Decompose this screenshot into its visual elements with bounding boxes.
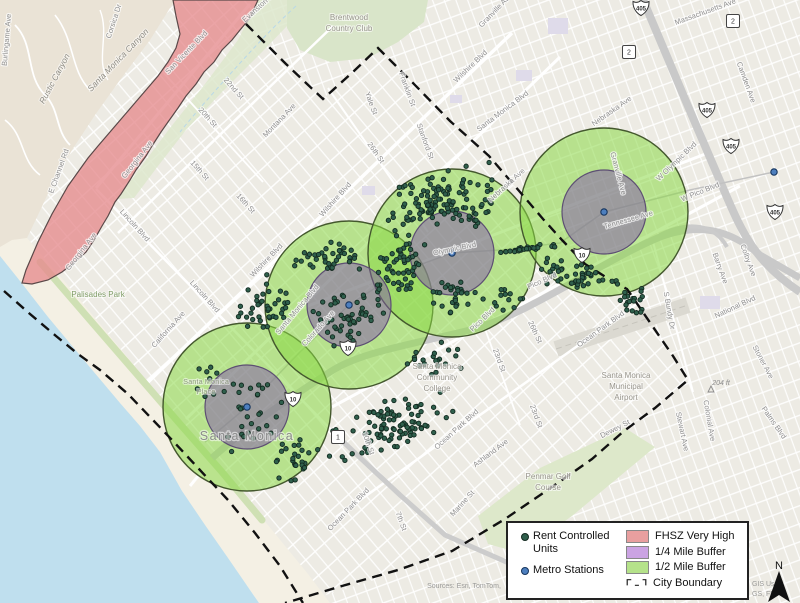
rent-controlled-unit-dot <box>454 211 458 215</box>
rent-controlled-unit-dot <box>414 350 418 354</box>
rent-controlled-unit-dot <box>476 183 480 187</box>
rent-controlled-unit-dot <box>589 265 593 269</box>
map-label: Penmar Golf <box>526 472 572 481</box>
rent-controlled-unit-dot <box>334 258 338 262</box>
legend-label: Metro Stations <box>533 564 604 577</box>
rent-controlled-unit-dot <box>369 318 373 322</box>
svg-text:1: 1 <box>336 435 340 442</box>
rent-controlled-unit-dot <box>487 160 491 164</box>
rent-controlled-unit-dot <box>454 354 458 358</box>
rent-controlled-unit-dot <box>331 251 335 255</box>
rent-controlled-unit-dot <box>579 263 583 267</box>
rent-controlled-unit-dot <box>416 413 420 417</box>
rent-controlled-unit-dot <box>215 371 219 375</box>
rent-controlled-unit-dot <box>410 185 414 189</box>
svg-text:10: 10 <box>345 346 352 352</box>
rent-controlled-unit-dot <box>327 454 331 458</box>
rent-controlled-unit-dot <box>387 418 391 422</box>
rent-controlled-unit-dot <box>347 260 351 264</box>
map-label: Sources: Esri, TomTom, <box>427 583 501 590</box>
rent-controlled-unit-dot <box>361 293 365 297</box>
rent-controlled-unit-dot <box>293 452 297 456</box>
rent-controlled-unit-dot <box>638 298 642 302</box>
rent-controlled-unit-dot <box>231 382 235 386</box>
rent-controlled-unit-dot <box>291 456 295 460</box>
rent-controlled-unit-dot <box>197 367 201 371</box>
rent-controlled-unit-dot <box>284 291 288 295</box>
rent-controlled-unit-dot <box>302 466 306 470</box>
rent-controlled-unit-dot <box>348 335 352 339</box>
metro-station-dot <box>601 209 607 215</box>
rent-controlled-unit-dot <box>392 398 396 402</box>
rent-controlled-unit-dot <box>593 271 597 275</box>
rent-controlled-unit-dot <box>239 383 243 387</box>
rent-controlled-unit-dot <box>294 463 298 467</box>
rent-controlled-unit-dot <box>325 330 329 334</box>
rent-controlled-unit-dot <box>293 478 297 482</box>
legend-label: 1/2 Mile Buffer <box>655 561 726 574</box>
rent-controlled-unit-dot <box>421 189 425 193</box>
rent-controlled-unit-dot <box>379 426 383 430</box>
rent-controlled-unit-dot <box>386 218 390 222</box>
rent-controlled-unit-dot <box>632 299 636 303</box>
legend-label: 1/4 Mile Buffer <box>655 546 726 559</box>
svg-text:10: 10 <box>579 253 586 259</box>
rent-controlled-unit-dot <box>260 386 264 390</box>
svg-text:405: 405 <box>636 6 647 12</box>
rent-controlled-unit-dot <box>565 274 569 278</box>
rent-controlled-unit-dot <box>634 311 638 315</box>
rent-controlled-unit-dot <box>342 246 346 250</box>
rent-controlled-unit-dot <box>265 424 269 428</box>
rent-controlled-unit-dot <box>338 329 342 333</box>
rent-controlled-unit-dot <box>277 476 281 480</box>
map-label: Santa Monica <box>602 371 651 380</box>
rent-controlled-unit-dot <box>465 291 469 295</box>
rent-controlled-unit-dot <box>586 271 590 275</box>
rent-controlled-unit-dot <box>260 299 264 303</box>
rent-controlled-unit-dot <box>422 243 426 247</box>
rent-controlled-unit-dot <box>274 315 278 319</box>
rent-controlled-unit-dot <box>457 190 461 194</box>
rent-controlled-unit-dot <box>279 400 283 404</box>
rent-controlled-unit-dot <box>302 251 306 255</box>
quarter-mile-swatch <box>626 546 649 559</box>
rent-controlled-unit-dot <box>396 271 400 275</box>
rent-controlled-unit-dot <box>409 281 413 285</box>
rent-controlled-unit-dot <box>386 278 390 282</box>
metro-station-dot <box>244 404 250 410</box>
rent-controlled-unit-dot <box>412 433 416 437</box>
svg-text:405: 405 <box>702 108 713 114</box>
rent-controlled-unit-dot <box>615 282 619 286</box>
rent-controlled-unit-dot <box>474 212 478 216</box>
rent-controlled-unit-dot <box>238 407 242 411</box>
rent-controlled-unit-dot <box>451 200 455 204</box>
rent-controlled-unit-dot <box>251 317 255 321</box>
rent-controlled-unit-dot <box>425 194 429 198</box>
rent-controlled-unit-dot <box>376 297 380 301</box>
rent-controlled-unit-dot <box>387 438 391 442</box>
rent-controlled-unit-dot <box>245 324 249 328</box>
rent-controlled-unit-dot <box>375 283 379 287</box>
rent-controlled-unit-dot <box>278 289 282 293</box>
rent-controlled-unit-dot <box>451 216 455 220</box>
map-label: Santa Monica <box>200 429 294 443</box>
legend-item-quarter-mile: 1/4 Mile Buffer <box>626 546 745 559</box>
rent-controlled-unit-dot <box>405 425 409 429</box>
rent-controlled-unit-dot <box>257 412 261 416</box>
city-boundary-icon <box>626 577 647 588</box>
rent-controlled-unit-dot <box>267 315 271 319</box>
rent-controlled-unit-dot <box>503 292 507 296</box>
rent-controlled-unit-dot <box>381 311 385 315</box>
rent-controlled-unit-dot <box>257 383 261 387</box>
map-label: Community <box>417 373 457 382</box>
rent-controlled-unit-dot <box>403 202 407 206</box>
rent-controlled-unit-dot <box>407 270 411 274</box>
north-label: N <box>775 560 783 572</box>
rent-controlled-unit-dot <box>408 210 412 214</box>
rent-controlled-unit-dot <box>229 449 233 453</box>
rent-controlled-unit-dot <box>623 290 627 294</box>
rent-controlled-unit-dot <box>446 348 450 352</box>
rent-controlled-unit-dot <box>286 300 290 304</box>
rent-controlled-unit-dot <box>351 319 355 323</box>
metro-stations-icon <box>521 567 529 575</box>
rent-controlled-unit-dot <box>481 297 485 301</box>
rent-controlled-unit-dot <box>445 206 449 210</box>
rent-controlled-unit-dot <box>258 319 262 323</box>
rent-controlled-unit-dot <box>586 282 590 286</box>
rent-controlled-unit-dot <box>237 390 241 394</box>
rent-controlled-unit-dot <box>438 291 442 295</box>
rent-controlled-unit-dot <box>426 203 430 207</box>
map-label: Brentwood <box>330 13 368 22</box>
rent-controlled-unit-dot <box>363 313 367 317</box>
rent-controlled-unit-dot <box>276 298 280 302</box>
rent-controlled-unit-dot <box>430 176 434 180</box>
legend-item-half-mile: 1/2 Mile Buffer <box>626 561 745 574</box>
rent-controlled-unit-dot <box>397 192 401 196</box>
legend-label: FHSZ Very High <box>655 530 734 543</box>
rent-controlled-unit-dot <box>279 311 283 315</box>
rent-controlled-unit-dot <box>390 252 394 256</box>
rent-controlled-unit-dot <box>329 303 333 307</box>
rent-controlled-unit-dot <box>222 389 226 393</box>
map-label: Santa Monica <box>183 377 230 386</box>
route-1-shield: 1 <box>332 431 345 444</box>
rent-controlled-unit-dot <box>627 299 631 303</box>
rent-controlled-unit-dot <box>209 365 213 369</box>
rent-controlled-unit-dot <box>330 335 334 339</box>
map-label: Course <box>535 483 561 492</box>
rent-controlled-unit-dot <box>385 267 389 271</box>
rent-controlled-unit-dot <box>539 267 543 271</box>
metro-station-dot <box>346 302 352 308</box>
rent-controlled-unit-dot <box>416 204 420 208</box>
rent-controlled-unit-dot <box>411 216 415 220</box>
rent-controlled-unit-dot <box>273 302 277 306</box>
rent-controlled-unit-dot <box>289 479 293 483</box>
rent-controlled-unit-dot <box>342 251 346 255</box>
rent-controlled-unit-dot <box>433 204 437 208</box>
map-label: Municipal <box>609 382 643 391</box>
rent-controlled-unit-dot <box>432 194 436 198</box>
rent-controlled-unit-dot <box>246 288 250 292</box>
rent-controlled-unit-dot <box>391 211 395 215</box>
map-canvas[interactable]: 405405405405101010221 Rustic CanyonSanta… <box>0 0 800 603</box>
rent-controlled-unit-dot <box>391 271 395 275</box>
rent-controlled-unit-dot <box>501 308 505 312</box>
rent-controlled-unit-dot <box>255 294 259 298</box>
rent-controlled-unit-dot <box>404 242 408 246</box>
rent-controlled-unit-dot <box>490 178 494 182</box>
svg-text:10: 10 <box>290 397 297 403</box>
rent-controlled-unit-dot <box>410 420 414 424</box>
rent-controlled-unit-dot <box>474 218 478 222</box>
map-label: Santa Monica <box>413 362 462 371</box>
rent-controlled-unit-dot <box>453 298 457 302</box>
legend-label: City Boundary <box>653 577 722 590</box>
rent-controlled-unit-dot <box>401 222 405 226</box>
legend-label: Rent Controlled Units <box>533 530 626 555</box>
rent-controlled-unit-dot <box>419 193 423 197</box>
rent-controlled-unit-dot <box>463 206 467 210</box>
rent-controlled-unit-dot <box>341 294 345 298</box>
rent-controlled-unit-dot <box>435 222 439 226</box>
map-label: College <box>423 384 451 393</box>
rent-controlled-unit-dot <box>449 285 453 289</box>
rent-controlled-unit-dot <box>379 448 383 452</box>
rent-controlled-unit-dot <box>256 303 260 307</box>
rent-controlled-unit-dot <box>385 407 389 411</box>
rent-controlled-unit-dot <box>555 265 559 269</box>
rent-controlled-unit-dot <box>414 252 418 256</box>
rent-controlled-unit-dot <box>397 185 401 189</box>
rent-controlled-unit-dot <box>265 273 269 277</box>
rent-controlled-unit-dot <box>406 439 410 443</box>
rent-controlled-unit-dot <box>248 386 252 390</box>
rent-controlled-unit-dot <box>395 445 399 449</box>
rent-controlled-unit-dot <box>339 324 343 328</box>
rent-controlled-unit-dot <box>436 188 440 192</box>
rent-controlled-unit-dot <box>385 412 389 416</box>
rent-controlled-unit-dot <box>406 406 410 410</box>
legend-item-metro-stations: Metro Stations <box>516 564 626 577</box>
rent-controlled-unit-dot <box>451 409 455 413</box>
rent-controlled-unit-dot <box>261 325 265 329</box>
map-label: Place <box>197 387 216 396</box>
map-label: 204 ft <box>711 380 731 387</box>
rent-controlled-unit-dot <box>367 420 371 424</box>
rent-controlled-unit-dot <box>441 177 445 181</box>
rent-controlled-unit-dot <box>382 422 386 426</box>
rent-controlled-unit-dot <box>407 233 411 237</box>
rent-controlled-unit-dot <box>333 325 337 329</box>
rent-controlled-unit-dot <box>556 279 560 283</box>
rent-controlled-unit-dot <box>307 451 311 455</box>
rent-controlled-unit-dot <box>357 331 361 335</box>
rent-controlled-unit-dot <box>376 413 380 417</box>
rent-controlled-unit-dot <box>545 256 549 260</box>
rent-controlled-unit-dot <box>298 438 302 442</box>
rent-controlled-unit-dot <box>459 291 463 295</box>
rent-controlled-unit-dot <box>408 247 412 251</box>
rent-controlled-unit-dot <box>379 256 383 260</box>
map-label: GIS Us <box>752 581 775 588</box>
rent-controlled-unit-dot <box>413 404 417 408</box>
rent-controlled-unit-dot <box>382 436 386 440</box>
rent-controlled-unit-dot <box>314 257 318 261</box>
rent-controlled-unit-dot <box>406 258 410 262</box>
rent-controlled-unit-dot <box>391 215 395 219</box>
rent-controlled-unit-dot <box>297 443 301 447</box>
rent-controlled-unit-dot <box>440 304 444 308</box>
rent-controlled-unit-dot <box>448 310 452 314</box>
rent-controlled-unit-dot <box>581 284 585 288</box>
metro-station-dot <box>771 169 777 175</box>
rent-controlled-unit-dot <box>244 315 248 319</box>
rent-controlled-unit-dot <box>504 250 508 254</box>
rent-controlled-unit-dot <box>524 247 528 251</box>
rent-controlled-unit-dot <box>283 306 287 310</box>
rent-controlled-unit-dot <box>394 257 398 261</box>
rent-controlled-unit-dot <box>412 273 416 277</box>
rent-controlled-unit-dot <box>266 307 270 311</box>
rent-controlled-unit-dot <box>360 451 364 455</box>
rent-controlled-unit-dot <box>559 259 563 263</box>
rent-controlled-unit-dot <box>265 383 269 387</box>
rent-controlled-unit-dot <box>329 240 333 244</box>
rent-controlled-unit-dot <box>419 402 423 406</box>
rent-controlled-unit-dot <box>556 269 560 273</box>
rent-controlled-unit-dot <box>376 270 380 274</box>
rent-controlled-unit-dot <box>464 197 468 201</box>
rent-controlled-unit-dot <box>493 301 497 305</box>
rent-controlled-unit-dot <box>435 411 439 415</box>
rent-controlled-unit-dot <box>255 392 259 396</box>
rent-controlled-unit-dot <box>274 459 278 463</box>
rent-controlled-unit-dot <box>573 272 577 276</box>
rent-controlled-unit-dot <box>473 290 477 294</box>
map-screenshot: 405405405405101010221 Rustic CanyonSanta… <box>0 0 800 603</box>
rent-controlled-unit-dot <box>512 305 516 309</box>
rent-controlled-unit-dot <box>393 229 397 233</box>
rent-controlled-unit-dot <box>337 242 341 246</box>
rent-controlled-unit-dot <box>517 248 521 252</box>
rent-controlled-unit-dot <box>431 405 435 409</box>
rent-controlled-unit-dot <box>467 214 471 218</box>
legend-item-city-boundary: City Boundary <box>626 577 745 590</box>
rent-controlled-unit-dot <box>267 289 271 293</box>
rent-controlled-unit-dot <box>307 252 311 256</box>
rent-controlled-unit-dot <box>597 279 601 283</box>
rent-controlled-unit-dot <box>373 424 377 428</box>
rent-controlled-unit-dot <box>639 310 643 314</box>
rent-controlled-unit-dot <box>417 421 421 425</box>
rent-controlled-unit-dot <box>316 252 320 256</box>
rent-controlled-unit-dot <box>499 287 503 291</box>
rent-controlled-unit-dot <box>403 277 407 281</box>
rent-controlled-unit-dot <box>639 289 643 293</box>
rent-controlled-unit-dot <box>392 418 396 422</box>
rent-controlled-unit-dot <box>324 247 328 251</box>
rent-controlled-unit-dot <box>484 210 488 214</box>
rent-controlled-unit-dot <box>575 264 579 268</box>
rent-controlled-unit-dot <box>405 362 409 366</box>
rent-controlled-unit-dot <box>360 306 364 310</box>
rent-controlled-unit-dot <box>398 429 402 433</box>
rent-controlled-unit-dot <box>293 264 297 268</box>
rent-controlled-unit-dot <box>236 314 240 318</box>
rent-controlled-unit-dot <box>444 415 448 419</box>
rent-controlled-unit-dot <box>480 202 484 206</box>
rent-controlled-unit-dot <box>392 427 396 431</box>
rent-controlled-unit-dot <box>311 309 315 313</box>
rent-controlled-unit-dot <box>264 282 268 286</box>
rent-controlled-unit-dot <box>384 257 388 261</box>
svg-text:405: 405 <box>726 144 737 150</box>
half-mile-swatch <box>626 561 649 574</box>
rent-controlled-unit-dot <box>351 429 355 433</box>
rent-controlled-unit-dot <box>432 351 436 355</box>
rent-controlled-unit-dot <box>316 447 320 451</box>
rent-controlled-unit-dot <box>316 312 320 316</box>
rent-controlled-unit-dot <box>464 164 468 168</box>
rent-controlled-unit-dot <box>332 344 336 348</box>
rent-controlled-unit-dot <box>471 206 475 210</box>
rent-controlled-unit-dot <box>349 248 353 252</box>
rent-controlled-unit-dot <box>339 313 343 317</box>
svg-text:405: 405 <box>770 210 781 216</box>
rent-controlled-unit-dot <box>464 190 468 194</box>
rent-controlled-unit-dot <box>576 279 580 283</box>
rent-controlled-units-icon <box>521 533 529 541</box>
rent-controlled-unit-dot <box>461 178 465 182</box>
rent-controlled-unit-dot <box>274 415 278 419</box>
rent-controlled-unit-dot <box>440 280 444 284</box>
rent-controlled-unit-dot <box>431 290 435 294</box>
rent-controlled-unit-dot <box>443 192 447 196</box>
rent-controlled-unit-dot <box>397 287 401 291</box>
legend: Rent Controlled Units Metro Stations FHS… <box>506 521 749 600</box>
rent-controlled-unit-dot <box>455 347 459 351</box>
rent-controlled-unit-dot <box>405 215 409 219</box>
rent-controlled-unit-dot <box>261 292 265 296</box>
rent-controlled-unit-dot <box>418 217 422 221</box>
rent-controlled-unit-dot <box>357 267 361 271</box>
rent-controlled-unit-dot <box>327 262 331 266</box>
rent-controlled-unit-dot <box>284 447 288 451</box>
rent-controlled-unit-dot <box>401 271 405 275</box>
rent-controlled-unit-dot <box>340 455 344 459</box>
rent-controlled-unit-dot <box>300 448 304 452</box>
map-label: Palisades Park <box>71 290 125 299</box>
rent-controlled-unit-dot <box>350 452 354 456</box>
rent-controlled-unit-dot <box>518 297 522 301</box>
rent-controlled-unit-dot <box>443 285 447 289</box>
svg-text:2: 2 <box>627 50 631 57</box>
rent-controlled-unit-dot <box>321 300 325 304</box>
rent-controlled-unit-dot <box>205 370 209 374</box>
rent-controlled-unit-dot <box>508 292 512 296</box>
rent-controlled-unit-dot <box>461 185 465 189</box>
map-label: Airport <box>614 393 638 402</box>
rent-controlled-unit-dot <box>294 258 298 262</box>
rent-controlled-unit-dot <box>553 245 557 249</box>
rent-controlled-unit-dot <box>292 443 296 447</box>
